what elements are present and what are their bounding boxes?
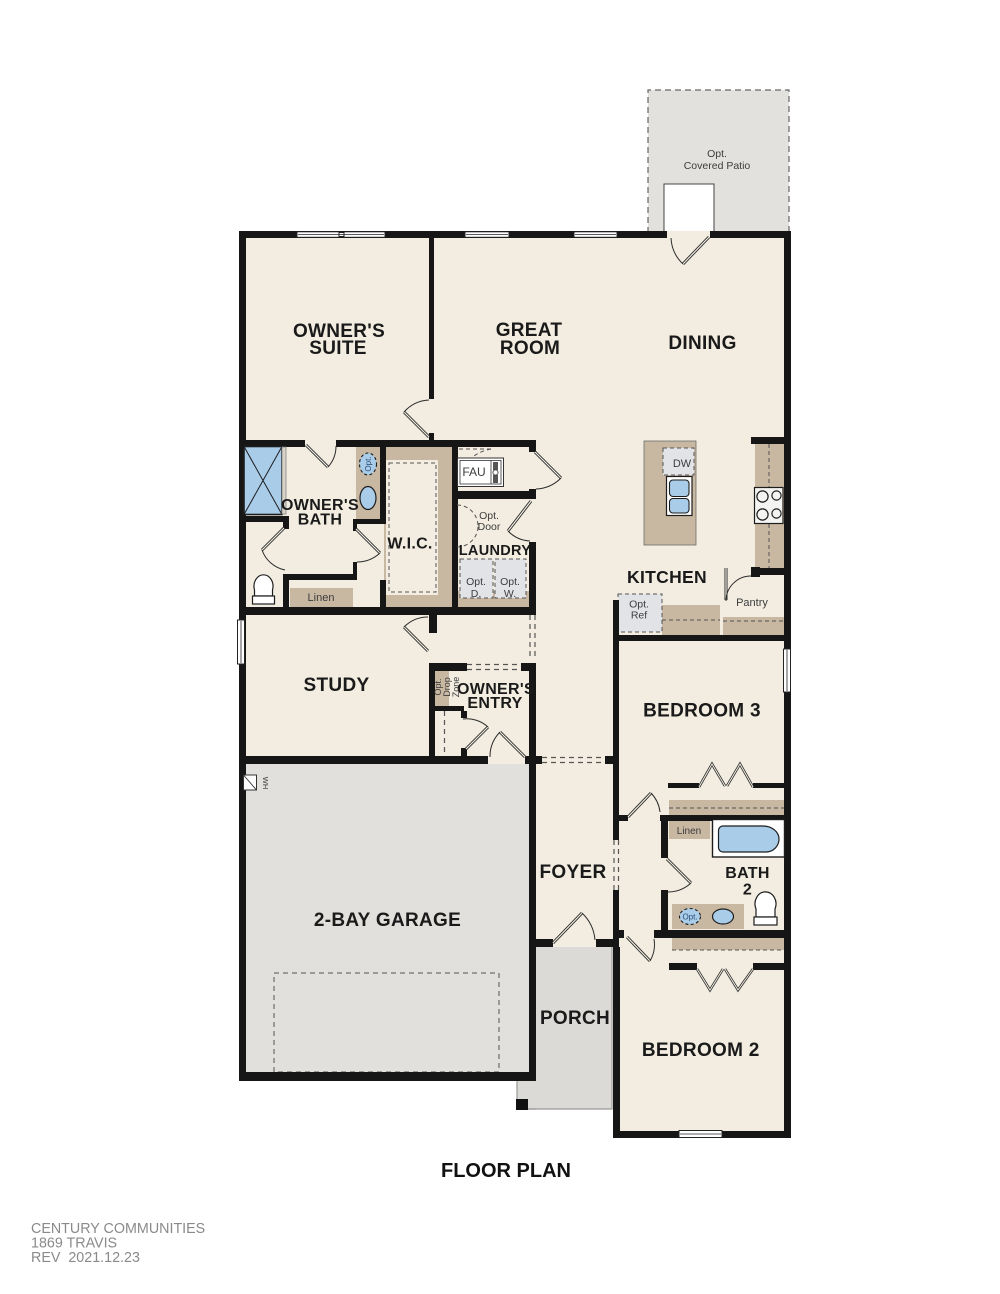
svg-text:REV 2021.12.23: REV 2021.12.23	[31, 1250, 140, 1266]
svg-text:Opt.: Opt.	[466, 576, 486, 588]
svg-text:2: 2	[743, 882, 752, 899]
svg-text:Door: Door	[478, 521, 501, 533]
svg-text:LAUNDRY: LAUNDRY	[459, 543, 531, 559]
svg-text:Linen: Linen	[677, 826, 701, 837]
svg-text:PORCH: PORCH	[540, 1008, 610, 1029]
svg-text:2-BAY GARAGE: 2-BAY GARAGE	[314, 910, 461, 931]
svg-text:ENTRY: ENTRY	[467, 695, 522, 712]
svg-text:Zone: Zone	[451, 677, 461, 698]
svg-text:FAU: FAU	[462, 465, 485, 479]
svg-text:Opt.: Opt.	[707, 148, 727, 160]
svg-text:FLOOR PLAN: FLOOR PLAN	[441, 1160, 571, 1182]
svg-text:BATH: BATH	[725, 865, 769, 882]
svg-text:KITCHEN: KITCHEN	[627, 567, 707, 587]
svg-text:Pantry: Pantry	[736, 597, 768, 609]
svg-text:Opt.: Opt.	[364, 456, 373, 471]
svg-text:BATH: BATH	[298, 512, 342, 529]
svg-text:Opt.: Opt.	[682, 913, 697, 922]
svg-text:FOYER: FOYER	[540, 862, 607, 883]
svg-text:BEDROOM 3: BEDROOM 3	[643, 701, 761, 722]
svg-text:WH: WH	[261, 777, 270, 790]
svg-text:STUDY: STUDY	[304, 675, 370, 696]
svg-text:ROOM: ROOM	[500, 338, 560, 359]
svg-text:Opt.: Opt.	[500, 576, 520, 588]
svg-text:DINING: DINING	[668, 333, 736, 354]
svg-text:SUITE: SUITE	[309, 338, 366, 359]
svg-text:BEDROOM 2: BEDROOM 2	[642, 1040, 760, 1061]
svg-text:Covered Patio: Covered Patio	[684, 160, 751, 172]
svg-text:Linen: Linen	[308, 592, 335, 604]
svg-text:W.: W.	[504, 588, 516, 600]
svg-text:D.: D.	[471, 588, 482, 600]
svg-text:W.I.C.: W.I.C.	[387, 536, 432, 553]
svg-text:Ref: Ref	[631, 610, 647, 622]
svg-text:DW: DW	[673, 458, 692, 470]
